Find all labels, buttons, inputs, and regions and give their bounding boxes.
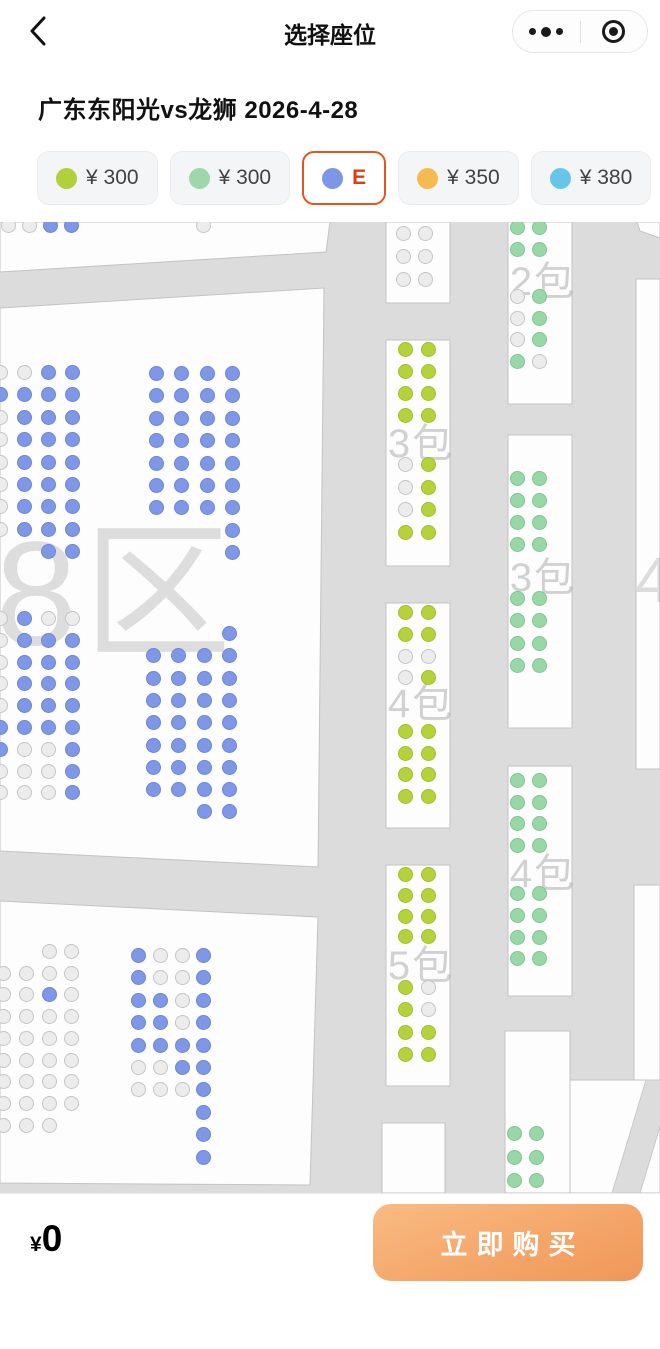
seat-dot-available-yellowgreen[interactable] [421,909,436,924]
seat-dot-unavailable [418,249,433,264]
nav-bar: 选择座位 [0,0,660,66]
seat-dot-available-yellowgreen[interactable] [398,627,413,642]
seat-dot-available-blue[interactable] [197,782,212,797]
top-right-wedge [637,222,660,238]
seat-dot-available-green[interactable] [532,311,547,326]
total-price: ¥0 [30,1218,62,1260]
seat-color-dot [550,168,571,189]
price-chip-2[interactable]: E [302,151,386,205]
seat-dot-unavailable [398,457,413,472]
seat-dot-unavailable [42,1031,57,1046]
seat-dot-available-blue[interactable] [146,671,161,686]
seat-dot-available-blue[interactable] [65,455,80,470]
seat-dot-unavailable [131,1060,146,1075]
seat-dot-unavailable [175,970,190,985]
price-chip-4[interactable]: ¥ 380 [531,151,652,205]
seat-dot-unavailable [175,1082,190,1097]
seat-dot-unavailable [19,1009,34,1024]
seat-dot-available-green[interactable] [532,289,547,304]
seat-dot-unavailable [175,948,190,963]
seat-dot-available-blue[interactable] [65,764,80,779]
seat-dot-available-green[interactable] [510,636,525,651]
price-chip-label: ¥ 300 [219,166,272,190]
seat-dot-unavailable [19,1074,34,1089]
seat-dot-available-blue[interactable] [222,782,237,797]
seat-dot-available-blue[interactable] [225,456,240,471]
wechat-capsule [512,10,648,53]
suite-box-bottom [505,1031,570,1193]
seat-color-dot [322,168,343,189]
seat-dot-unavailable [19,1096,34,1111]
seat-dot-unavailable [153,1060,168,1075]
seat-dot-available-green[interactable] [510,908,525,923]
right-edge-upper [636,279,660,769]
seat-dot-available-yellowgreen[interactable] [398,386,413,401]
seat-dot-available-green[interactable] [510,471,525,486]
seat-map[interactable]: 08区3包4包5包2包3包4包4 [0,222,660,1193]
seat-dot-available-yellowgreen[interactable] [398,888,413,903]
seat-dot-available-green[interactable] [532,537,547,552]
seat-dot-available-green[interactable] [532,795,547,810]
seat-dot-available-blue[interactable] [65,742,80,757]
seat-dot-unavailable [17,742,32,757]
price-chip-1[interactable]: ¥ 300 [170,151,291,205]
seat-dot-available-blue[interactable] [197,715,212,730]
seat-dot-unavailable [510,289,525,304]
price-chip-label: ¥ 380 [580,166,633,190]
seat-dot-available-blue[interactable] [149,366,164,381]
seat-dot-available-green[interactable] [529,1173,544,1188]
seat-dot-available-blue[interactable] [131,1038,146,1053]
section-watermark: 4 [635,543,660,617]
seat-dot-available-blue[interactable] [41,522,56,537]
seat-dot-unavailable [396,226,411,241]
seat-dot-available-green[interactable] [510,930,525,945]
seat-dot-unavailable [532,354,547,369]
seat-dot-available-blue[interactable] [131,948,146,963]
seat-dot-available-blue[interactable] [225,433,240,448]
seat-dot-available-green[interactable] [510,591,525,606]
seat-dot-available-yellowgreen[interactable] [398,789,413,804]
seat-dot-available-blue[interactable] [42,987,57,1002]
seat-dot-available-yellowgreen[interactable] [398,364,413,379]
seat-dot-available-yellowgreen[interactable] [398,724,413,739]
seat-dot-unavailable [65,611,80,626]
seat-dot-unavailable [19,1053,34,1068]
seat-dot-unavailable [421,980,436,995]
seat-dot-available-blue[interactable] [149,411,164,426]
seat-dot-available-blue[interactable] [200,388,215,403]
suite-box-empty [382,1123,445,1193]
seat-dot-available-green[interactable] [532,242,547,257]
seat-dot-available-yellowgreen[interactable] [421,627,436,642]
seat-dot-available-blue[interactable] [197,804,212,819]
seat-dot-available-blue[interactable] [222,715,237,730]
seat-dot-available-blue[interactable] [153,1038,168,1053]
seat-dot-available-yellowgreen[interactable] [398,746,413,761]
seat-dot-available-blue[interactable] [225,478,240,493]
seat-dot-available-blue[interactable] [197,738,212,753]
seat-dot-available-green[interactable] [510,795,525,810]
seat-dot-available-green[interactable] [532,930,547,945]
seat-dot-available-green[interactable] [532,636,547,651]
seat-dot-available-blue[interactable] [41,477,56,492]
seat-dot-available-blue[interactable] [197,693,212,708]
seat-dot-available-blue[interactable] [196,1038,211,1053]
seat-dot-available-green[interactable] [532,591,547,606]
seat-dot-available-blue[interactable] [197,760,212,775]
seat-dot-available-blue[interactable] [65,720,80,735]
seat-color-dot [56,168,77,189]
seat-dot-unavailable [42,1074,57,1089]
seat-dot-available-blue[interactable] [225,366,240,381]
seat-dot-unavailable [42,1009,57,1024]
seat-dot-available-blue[interactable] [174,456,189,471]
seat-dot-available-blue[interactable] [65,655,80,670]
seat-dot-available-blue[interactable] [225,523,240,538]
seat-dot-available-blue[interactable] [41,410,56,425]
seat-dot-available-green[interactable] [532,838,547,853]
seat-dot-available-green[interactable] [510,493,525,508]
seat-dot-available-blue[interactable] [175,1038,190,1053]
seat-dot-available-yellowgreen[interactable] [421,605,436,620]
price-chip-label: E [352,166,366,190]
seat-dot-available-green[interactable] [510,537,525,552]
seat-dot-available-yellowgreen[interactable] [398,408,413,423]
section-watermark: 5包 [388,933,454,991]
seat-dot-unavailable [398,480,413,495]
seat-dot-available-green[interactable] [510,515,525,530]
seat-dot-available-blue[interactable] [17,410,32,425]
seat-dot-available-yellowgreen[interactable] [398,867,413,882]
seat-dot-unavailable [41,611,56,626]
seat-dot-available-green[interactable] [510,773,525,788]
seat-dot-unavailable [396,272,411,287]
seat-selection-page: 选择座位 广东东阳光vs龙狮 2026-4-28 ¥ 300¥ 300E¥ 35… [0,0,660,1349]
seat-dot-available-yellowgreen[interactable] [398,980,413,995]
seat-color-dot [417,168,438,189]
seat-dot-unavailable [421,649,436,664]
seat-dot-available-yellowgreen[interactable] [398,605,413,620]
currency-symbol: ¥ [30,1233,42,1257]
seat-dot-available-blue[interactable] [171,671,186,686]
seat-dot-available-green[interactable] [507,1150,522,1165]
seat-dot-unavailable [64,1053,79,1068]
buy-now-button[interactable]: 立即购买 [373,1204,643,1281]
seat-dot-available-green[interactable] [532,471,547,486]
seat-dot-unavailable [19,1031,34,1046]
seat-dot-available-blue[interactable] [149,478,164,493]
seat-color-dot [189,168,210,189]
seat-dot-available-green[interactable] [532,908,547,923]
seat-dot-available-yellowgreen[interactable] [421,386,436,401]
price-filter-bar: ¥ 300¥ 300E¥ 350¥ 380 [0,151,660,209]
seat-dot-unavailable [418,226,433,241]
seat-dot-available-blue[interactable] [131,993,146,1008]
seat-dot-unavailable [17,764,32,779]
seat-dot-unavailable [153,948,168,963]
home-button[interactable] [581,11,648,52]
seat-dot-unavailable [19,1118,34,1133]
seat-dot-unavailable [418,272,433,287]
seat-dot-available-yellowgreen[interactable] [421,457,436,472]
seat-dot-available-blue[interactable] [41,655,56,670]
price-chip-label: ¥ 350 [447,166,500,190]
seat-dot-available-blue[interactable] [17,522,32,537]
seat-dot-available-blue[interactable] [146,782,161,797]
more-menu-button[interactable] [513,11,580,52]
seat-dot-available-blue[interactable] [197,671,212,686]
seat-dot-available-blue[interactable] [200,411,215,426]
seat-dot-available-blue[interactable] [17,720,32,735]
seat-dot-available-blue[interactable] [65,410,80,425]
seat-dot-available-blue[interactable] [225,411,240,426]
seat-dot-available-yellowgreen[interactable] [421,525,436,540]
seat-dot-available-green[interactable] [529,1150,544,1165]
seat-dot-available-blue[interactable] [171,738,186,753]
seat-dot-available-yellowgreen[interactable] [421,724,436,739]
seat-dot-unavailable [175,1015,190,1030]
seat-dot-unavailable [398,649,413,664]
total-amount: 0 [42,1218,63,1260]
seat-dot-available-green[interactable] [510,354,525,369]
seat-dot-available-blue[interactable] [146,760,161,775]
venue-layout [0,222,660,1193]
checkout-bar: ¥0 立即购买 [0,1193,660,1349]
seat-dot-available-yellowgreen[interactable] [398,342,413,357]
seat-dot-available-blue[interactable] [196,1150,211,1165]
seat-dot-available-blue[interactable] [225,545,240,560]
price-chip-0[interactable]: ¥ 300 [37,151,158,205]
price-chip-label: ¥ 300 [86,166,139,190]
seat-dot-available-yellowgreen[interactable] [421,867,436,882]
seat-dot-available-yellowgreen[interactable] [421,746,436,761]
seat-dot-available-blue[interactable] [65,365,80,380]
seat-dot-available-blue[interactable] [174,411,189,426]
seat-dot-available-green[interactable] [532,515,547,530]
target-circle-icon [602,20,625,43]
seat-dot-available-blue[interactable] [200,500,215,515]
seat-dot-available-blue[interactable] [222,760,237,775]
seat-dot-available-blue[interactable] [222,671,237,686]
seat-dot-available-blue[interactable] [200,366,215,381]
seat-dot-available-blue[interactable] [65,633,80,648]
seat-dot-available-blue[interactable] [175,1060,190,1075]
price-chip-3[interactable]: ¥ 350 [398,151,519,205]
seat-dot-available-yellowgreen[interactable] [421,888,436,903]
seat-dot-available-yellowgreen[interactable] [421,789,436,804]
seat-dot-available-blue[interactable] [17,477,32,492]
seat-dot-available-green[interactable] [532,493,547,508]
seat-dot-unavailable [64,966,79,981]
event-title: 广东东阳光vs龙狮 2026-4-28 [38,90,358,125]
seat-dot-available-green[interactable] [510,242,525,257]
seat-dot-available-green[interactable] [510,886,525,901]
seat-dot-available-yellowgreen[interactable] [398,525,413,540]
seat-dot-available-blue[interactable] [41,633,56,648]
seat-dot-available-blue[interactable] [200,433,215,448]
seat-dot-available-green[interactable] [507,1173,522,1188]
seat-dot-available-blue[interactable] [41,455,56,470]
seat-dot-available-blue[interactable] [222,693,237,708]
seat-dot-available-blue[interactable] [153,1015,168,1030]
seat-dot-available-blue[interactable] [17,611,32,626]
seat-dot-available-blue[interactable] [17,633,32,648]
seat-dot-unavailable [42,1118,57,1133]
seat-dot-unavailable [175,993,190,1008]
seat-dot-available-blue[interactable] [200,478,215,493]
seat-dot-available-blue[interactable] [222,738,237,753]
seat-dot-available-yellowgreen[interactable] [421,480,436,495]
seat-dot-available-blue[interactable] [222,626,237,641]
seat-dot-available-yellowgreen[interactable] [421,364,436,379]
seat-dot-available-green[interactable] [532,886,547,901]
more-dots-icon [529,27,563,37]
seat-dot-available-blue[interactable] [200,456,215,471]
seat-dot-unavailable [42,1053,57,1068]
seat-dot-unavailable [510,311,525,326]
seat-dot-available-yellowgreen[interactable] [421,342,436,357]
seat-dot-available-blue[interactable] [41,365,56,380]
seat-dot-unavailable [396,249,411,264]
seat-dot-available-blue[interactable] [17,655,32,670]
seat-dot-available-green[interactable] [529,1126,544,1141]
seat-dot-available-yellowgreen[interactable] [421,408,436,423]
seat-dot-available-yellowgreen[interactable] [398,1025,413,1040]
seat-dot-unavailable [42,966,57,981]
seat-dot-available-blue[interactable] [149,456,164,471]
seat-dot-available-yellowgreen[interactable] [398,909,413,924]
seat-dot-unavailable [42,1096,57,1111]
seat-dot-available-yellowgreen[interactable] [421,1025,436,1040]
seat-dot-available-blue[interactable] [65,522,80,537]
seat-dot-unavailable [41,764,56,779]
seat-dot-unavailable [19,966,34,981]
seat-dot-available-green[interactable] [510,838,525,853]
seat-dot-available-green[interactable] [507,1126,522,1141]
seat-dot-available-blue[interactable] [41,720,56,735]
seat-dot-available-blue[interactable] [197,648,212,663]
seat-dot-available-blue[interactable] [146,738,161,753]
seat-dot-available-blue[interactable] [146,693,161,708]
seat-dot-available-green[interactable] [532,773,547,788]
seat-dot-available-blue[interactable] [153,993,168,1008]
seat-dot-available-blue[interactable] [65,477,80,492]
seat-dot-available-blue[interactable] [171,760,186,775]
seat-dot-available-blue[interactable] [17,455,32,470]
seat-dot-unavailable [17,365,32,380]
seat-dot-unavailable [42,944,57,959]
seat-dot-unavailable [41,742,56,757]
